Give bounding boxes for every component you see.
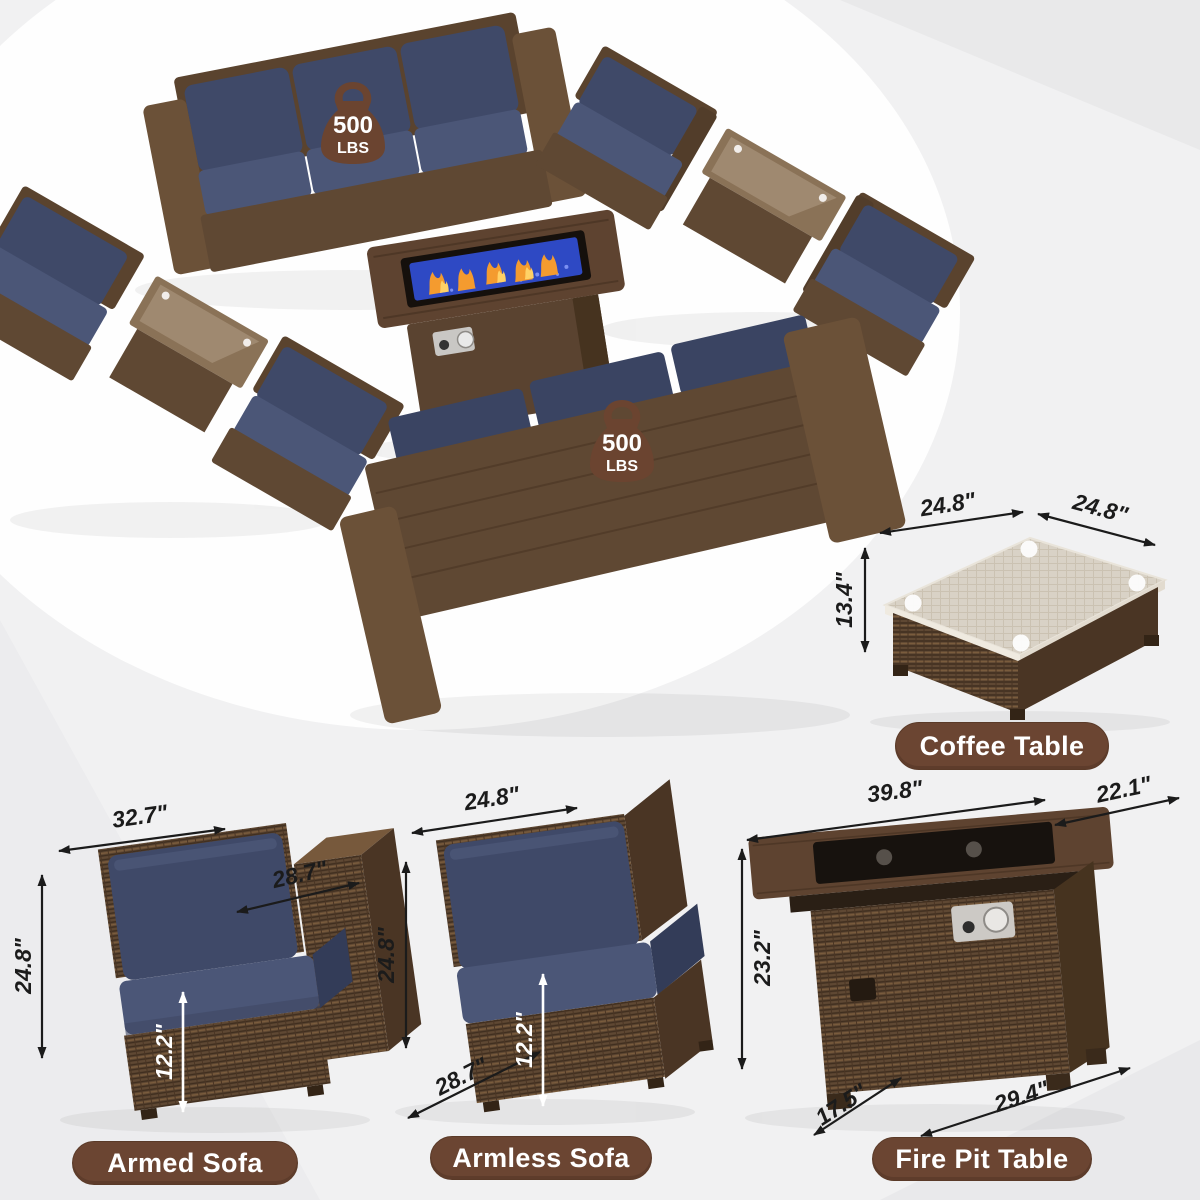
- dim-firepit-base-depth: 17.5": [811, 1078, 873, 1131]
- dim-arrow-firepit-top-width: [747, 800, 1045, 840]
- label-armless-sofa-text: Armless Sofa: [452, 1143, 629, 1174]
- dim-coffee-top-right: 24.8": [1069, 488, 1132, 528]
- label-fire-pit-table-text: Fire Pit Table: [895, 1144, 1068, 1175]
- dim-armed-depth: 28.7": [269, 855, 331, 893]
- dim-firepit-top-depth: 22.1": [1093, 770, 1155, 807]
- dim-arrow-armed-width: [59, 829, 225, 851]
- dim-arrow-armless-width: [412, 808, 577, 833]
- dim-armed-seat-height: 12.2": [151, 1023, 177, 1080]
- product-infographic: 500 LBS: [0, 0, 1200, 1200]
- dim-armless-width: 24.8": [461, 781, 522, 816]
- dim-coffee-height: 13.4": [831, 571, 857, 628]
- label-coffee-table-text: Coffee Table: [920, 731, 1085, 762]
- dim-firepit-base-width: 29.4": [990, 1075, 1053, 1118]
- label-armless-sofa: Armless Sofa: [430, 1136, 652, 1180]
- dim-firepit-height: 23.2": [749, 929, 775, 987]
- dimension-annotations: 24.8" 24.8" 13.4" 32.7" 28.7" 24.8" 12.2…: [0, 0, 1200, 1200]
- label-armed-sofa: Armed Sofa: [72, 1141, 298, 1185]
- dim-firepit-top-width: 39.8": [866, 775, 926, 808]
- label-coffee-table: Coffee Table: [895, 722, 1109, 770]
- label-armed-sofa-text: Armed Sofa: [107, 1148, 263, 1179]
- dim-armless-seat-height: 12.2": [511, 1011, 537, 1068]
- dim-armless-depth: 28.7": [430, 1052, 493, 1101]
- dim-armed-height: 24.8": [10, 937, 36, 995]
- dim-armed-width: 32.7": [110, 799, 170, 833]
- label-fire-pit-table: Fire Pit Table: [872, 1137, 1092, 1181]
- dim-armless-height: 24.8": [373, 926, 399, 984]
- dim-coffee-top-left: 24.8": [917, 487, 978, 522]
